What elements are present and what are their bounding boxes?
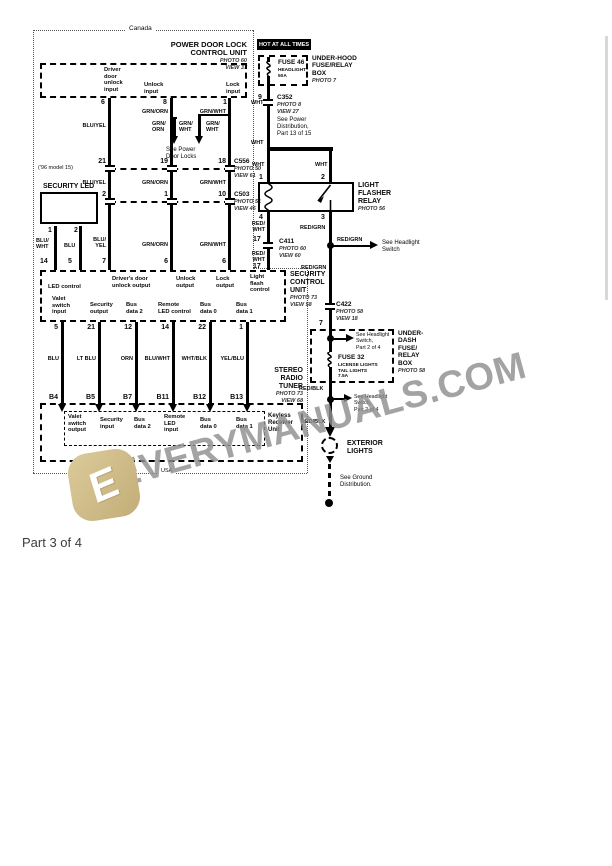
underdash-box-title: UNDER- DASH FUSE/ RELAY BOX bbox=[398, 330, 423, 367]
region-border-left bbox=[33, 30, 34, 473]
pin-17a: 17 bbox=[253, 236, 261, 243]
scu-remote-led-control-label: Remote LED control bbox=[158, 302, 191, 315]
scu-bus-data0-label: Bus data 0 bbox=[200, 302, 217, 315]
wire-color-grn-orn-3: GRN/ORN bbox=[134, 242, 168, 248]
branch-grn-orn-arrow bbox=[170, 136, 178, 144]
wire-color-red-grn-2: RED/GRN bbox=[337, 237, 362, 243]
pdl-driver-unlock-input-label: Driver door unlock input bbox=[104, 67, 123, 94]
connector-c503-label: C503 bbox=[234, 191, 250, 198]
pin-s14: 14 bbox=[153, 324, 169, 331]
stereo-radio-tuner-annotation: PHOTO 73 VIEW 68 bbox=[268, 391, 303, 404]
wire-red-grn bbox=[329, 212, 332, 332]
pin-1b: 1 bbox=[150, 191, 168, 198]
see-power-door-locks-note: See Power Door Locks bbox=[166, 147, 196, 161]
scu-light-flash-control-label: Light flash control bbox=[250, 274, 270, 294]
headlight-branch-hwire bbox=[332, 245, 370, 247]
scu-title: SECURITY CONTROL UNIT bbox=[290, 271, 325, 294]
pin-b4: B4 bbox=[38, 394, 58, 401]
pin-b13: B13 bbox=[221, 394, 243, 401]
scu-driver-unlock-output-label: Driver's door unlock output bbox=[112, 276, 150, 289]
tuner-arrow-3 bbox=[132, 404, 140, 412]
wire-color-red-blk-1: RED/BLK bbox=[299, 386, 323, 392]
page-edge-line bbox=[605, 36, 608, 300]
tuner-arrow-5 bbox=[206, 404, 214, 412]
wiring-diagram-page: Canada USA POWER DOOR LOCK CONTROL UNIT … bbox=[0, 0, 612, 866]
connector-c556-label: C556 bbox=[234, 158, 250, 165]
fuse46-stub-bottom bbox=[267, 76, 270, 85]
wire-blu-wht2 bbox=[172, 322, 175, 404]
pin-b11: B11 bbox=[147, 394, 169, 401]
wire-color-blu: BLU bbox=[64, 243, 75, 249]
wire-color-blu-wht: BLU/ WHT bbox=[36, 238, 49, 251]
security-led-title: SECURITY LED bbox=[43, 183, 94, 191]
pin-led-1: 1 bbox=[48, 227, 52, 234]
branch-color-grn-wht-1: GRN/ WHT bbox=[179, 121, 193, 134]
wire-color-red-wht-1: RED/ WHT bbox=[246, 221, 265, 234]
fuse46-symbol bbox=[262, 61, 275, 76]
exterior-lights-label: EXTERIOR LIGHTS bbox=[347, 440, 383, 456]
wire-blu bbox=[61, 322, 64, 404]
wire-lt-blu bbox=[98, 322, 101, 404]
pin-s21: 21 bbox=[79, 324, 95, 331]
tuner-arrow-2 bbox=[95, 404, 103, 412]
connector-c411-label: C411 bbox=[279, 238, 294, 245]
pin-b5: B5 bbox=[75, 394, 95, 401]
tuner-valet-switch-output-label: Valet switch output bbox=[68, 414, 86, 434]
wire-color-red-grn-1: RED/GRN bbox=[300, 225, 325, 231]
pin-21: 21 bbox=[88, 158, 106, 165]
wire-color-t-blu: BLU bbox=[39, 356, 59, 362]
pin-14: 14 bbox=[40, 258, 48, 265]
wire-color-wht-2: WHT bbox=[251, 140, 264, 146]
branch-grn-orn-vwire bbox=[173, 117, 176, 136]
pin-relay-2: 2 bbox=[321, 174, 325, 181]
ground-run-arrow bbox=[326, 456, 334, 463]
wire-color-grn-orn-2: GRN/ORN bbox=[134, 180, 168, 186]
pin-8: 8 bbox=[163, 99, 167, 106]
wire-grn-wht bbox=[228, 98, 231, 270]
ground-end-dot bbox=[325, 499, 333, 507]
pdl-title: POWER DOOR LOCK CONTROL UNIT bbox=[150, 41, 247, 58]
pin-b7: B7 bbox=[112, 394, 132, 401]
scu-lock-output-label: Lock output bbox=[216, 276, 234, 289]
wire-blu-yel bbox=[108, 98, 111, 270]
wire-color-grn-wht-2: GRN/WHT bbox=[192, 180, 226, 186]
scu-bus-data2-label: Bus data 2 bbox=[126, 302, 143, 315]
pin-led-2: 2 bbox=[74, 227, 78, 234]
junction-bar bbox=[267, 147, 333, 151]
wire-orn bbox=[135, 322, 138, 404]
pin-19: 19 bbox=[150, 158, 168, 165]
pin-17b: 17 bbox=[253, 263, 261, 270]
c422-connector bbox=[325, 303, 335, 310]
c411-connector bbox=[263, 242, 273, 249]
wire-color-blu-yel-1: BLU/YEL bbox=[74, 123, 106, 129]
pdl-lock-input-label: Lock input bbox=[226, 82, 240, 95]
wire-color-wht-3: WHT bbox=[252, 162, 265, 168]
pin-10: 10 bbox=[208, 191, 226, 198]
pin-b12: B12 bbox=[184, 394, 206, 401]
light-flasher-relay-annotation: PHOTO 56 bbox=[358, 206, 385, 213]
wire-blu-led bbox=[79, 226, 82, 270]
see-headlight-switch-p2-note-a: See Headlight Switch, Part 2 of 4 bbox=[356, 332, 389, 351]
headlight-branch-arrow bbox=[370, 241, 378, 249]
wire-wht-main bbox=[267, 85, 270, 147]
wire-color-wht-1: WHT bbox=[251, 100, 264, 106]
pin-s22: 22 bbox=[190, 324, 206, 331]
pin-7: 7 bbox=[88, 258, 106, 265]
branch-color-grn-wht-2: GRN/ WHT bbox=[206, 121, 220, 134]
wire-color-t-yelblu: YEL/BLU bbox=[212, 356, 244, 362]
fuse46-sub-label: HEADLIGHT 50A bbox=[278, 68, 306, 79]
pdl-unlock-input-label: Unlock input bbox=[144, 82, 163, 95]
pin-s12: 12 bbox=[116, 324, 132, 331]
watermark-logo-letter: E bbox=[84, 456, 124, 513]
hot-at-all-times-banner: HOT AT ALL TIMES bbox=[257, 39, 311, 50]
tuner-arrow-4 bbox=[169, 404, 177, 412]
fuse32-symbol bbox=[323, 352, 336, 367]
stereo-radio-tuner-title: STEREO RADIO TUNER bbox=[268, 367, 303, 390]
fuse32-sub-label: LICENSE LIGHTS TAIL LIGHTS 7.5A bbox=[338, 363, 378, 380]
pin-7r: 7 bbox=[319, 320, 323, 327]
wire-blu-wht-led bbox=[54, 226, 57, 270]
pin-s5: 5 bbox=[42, 324, 58, 331]
scu-bus-data1-label: Bus data 1 bbox=[236, 302, 253, 315]
branch-grn-wht-vwire bbox=[198, 114, 201, 136]
ground-run-wire bbox=[328, 464, 331, 500]
pin-s1: 1 bbox=[227, 324, 243, 331]
pin-relay-4: 4 bbox=[259, 214, 263, 221]
security-led-box bbox=[40, 192, 98, 224]
wire-color-t-whtblk: WHT/BLK bbox=[175, 356, 207, 362]
c503-connector-a bbox=[105, 198, 115, 205]
see-headlight-switch-note: See Headlight Switch bbox=[382, 240, 420, 254]
wire-color-blu-yel-3: BLU/ YEL bbox=[86, 237, 106, 250]
fuse46-label: FUSE 46 bbox=[278, 59, 304, 66]
branch-color-grn-orn: GRN/ ORN bbox=[152, 121, 166, 134]
branch-grn-wht-arrow bbox=[195, 136, 203, 144]
scu-valet-switch-input-label: Valet switch input bbox=[52, 296, 70, 316]
light-flasher-relay-title: LIGHT FLASHER RELAY bbox=[358, 182, 391, 205]
pin-relay-3: 3 bbox=[321, 214, 325, 221]
tuner-security-input-label: Security input bbox=[100, 417, 123, 430]
watermark-logo: E bbox=[65, 446, 143, 524]
c556-connector-a bbox=[105, 165, 115, 172]
underhood-box-annotation: PHOTO 7 bbox=[312, 78, 336, 85]
underhood-box-title: UNDER-HOOD FUSE/RELAY BOX bbox=[312, 55, 357, 77]
connector-c422-annotation: PHOTO 58 VIEW 18 bbox=[336, 309, 363, 322]
scu-unlock-output-label: Unlock output bbox=[176, 276, 195, 289]
c556-connector-b bbox=[167, 165, 177, 172]
underdash-branch-arrow bbox=[346, 334, 354, 342]
tuner-remote-led-input-label: Remote LED input bbox=[164, 414, 185, 434]
wire-wht-blk bbox=[209, 322, 212, 404]
pin-relay-1: 1 bbox=[259, 174, 263, 181]
pin-6: 6 bbox=[101, 99, 105, 106]
fuse32-label: FUSE 32 bbox=[338, 354, 364, 361]
tuner-bus-data2-label: Bus data 2 bbox=[134, 417, 151, 430]
wire-color-red-grn-3: RED/GRN bbox=[301, 265, 326, 271]
scu-annotation: PHOTO 73 VIEW 58 bbox=[290, 295, 317, 308]
region-border-jog bbox=[253, 268, 307, 269]
wire-wht-left bbox=[267, 151, 270, 182]
underdash-branch-hwire bbox=[332, 338, 346, 340]
pin-1: 1 bbox=[223, 99, 227, 106]
wire-color-t-ltblu: LT BLU bbox=[70, 356, 96, 362]
c352-connector bbox=[263, 99, 273, 106]
see-ground-distribution-note: See Ground Distribution. bbox=[340, 475, 372, 489]
wire-wht-right bbox=[329, 151, 332, 182]
wire-color-red-wht-2: RED/ WHT bbox=[246, 251, 265, 264]
scu-security-output-label: Security output bbox=[90, 302, 113, 315]
page-footer: Part 3 of 4 bbox=[22, 535, 82, 550]
pin-6b: 6 bbox=[150, 258, 168, 265]
tuner-arrow-1 bbox=[58, 404, 66, 412]
model-96-note: ('96 model 15) bbox=[38, 165, 73, 171]
wire-red-wht bbox=[267, 212, 270, 270]
wire-color-t-orn: ORN bbox=[110, 356, 133, 362]
scu-led-control-label: LED control bbox=[48, 284, 81, 291]
connector-c352-annotation: PHOTO 8 VIEW 27 bbox=[277, 102, 301, 115]
region-label-canada: Canada bbox=[126, 25, 155, 33]
tuner-arrow-6 bbox=[243, 404, 251, 412]
c503-connector-b bbox=[167, 198, 177, 205]
see-power-distribution-note: See Power Distribution, Part 13 of 15 bbox=[277, 117, 311, 138]
connector-c411-annotation: PHOTO 60 VIEW 60 bbox=[279, 246, 306, 259]
branch-grn-wht-hwire bbox=[199, 114, 229, 116]
connector-c422-label: C422 bbox=[336, 301, 352, 308]
wire-color-t-bluwht: BLU/WHT bbox=[138, 356, 170, 362]
pin-5: 5 bbox=[68, 258, 72, 265]
connector-c352-label: C352 bbox=[277, 94, 293, 101]
pin-18: 18 bbox=[208, 158, 226, 165]
wire-yel-blu bbox=[246, 322, 249, 404]
wire-color-grn-wht-3: GRN/WHT bbox=[192, 242, 226, 248]
relay-coil-symbol bbox=[260, 184, 352, 210]
wire-color-grn-orn-1: GRN/ORN bbox=[134, 109, 168, 115]
pin-6c: 6 bbox=[208, 258, 226, 265]
wire-color-wht-4: WHT bbox=[315, 162, 328, 168]
